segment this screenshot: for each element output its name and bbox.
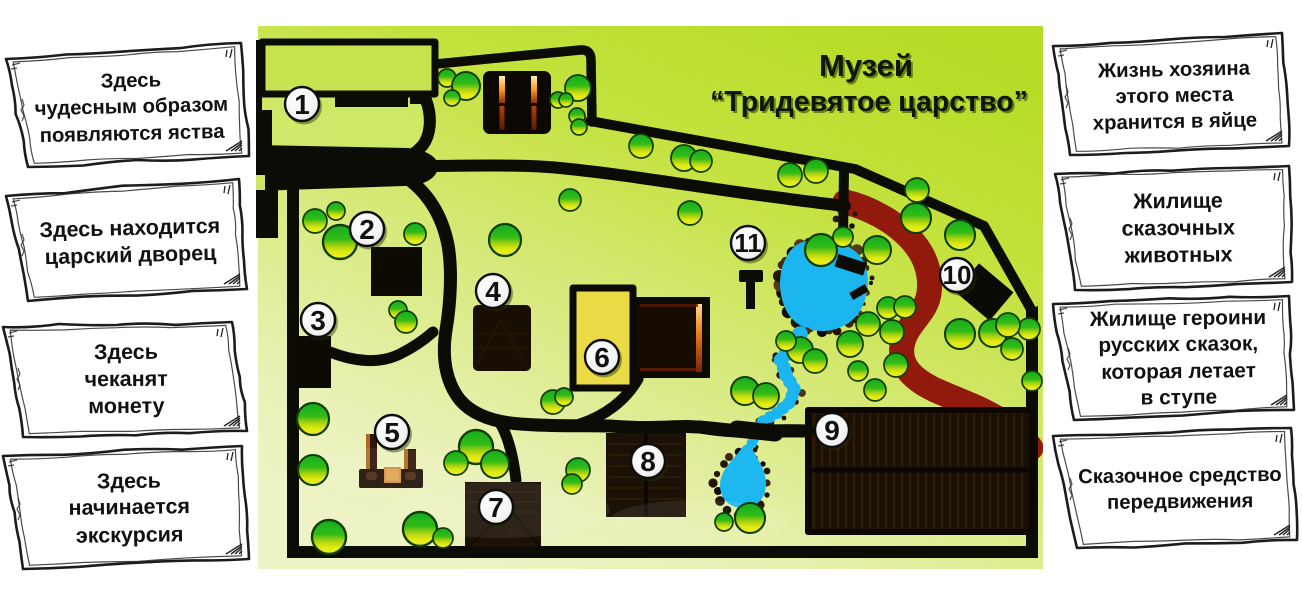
svg-text:царский дворец: царский дворец bbox=[44, 241, 217, 269]
svg-text:Сказочное средство: Сказочное средство bbox=[1078, 464, 1282, 488]
svg-text:сказочных: сказочных bbox=[1121, 215, 1235, 240]
svg-text:3: 3 bbox=[310, 305, 326, 336]
svg-text:7: 7 bbox=[488, 492, 504, 523]
svg-text:передвижения: передвижения bbox=[1107, 490, 1254, 514]
svg-text:монету: монету bbox=[88, 394, 165, 419]
svg-text:5: 5 bbox=[384, 417, 400, 448]
svg-text:6: 6 bbox=[594, 342, 610, 373]
svg-text:Здесь: Здесь bbox=[94, 340, 158, 364]
svg-text:Здесь находится: Здесь находится bbox=[39, 214, 220, 243]
svg-text:начинается: начинается bbox=[68, 494, 190, 520]
svg-text:Здесь: Здесь bbox=[100, 69, 161, 92]
svg-text:Здесь: Здесь bbox=[97, 469, 161, 494]
svg-text:хранится в яйце: хранится в яйце bbox=[1093, 109, 1258, 134]
svg-text:Музей: Музей bbox=[819, 48, 913, 83]
svg-text:2: 2 bbox=[359, 214, 375, 245]
svg-text:чеканят: чеканят bbox=[84, 367, 167, 392]
svg-text:11: 11 bbox=[734, 228, 762, 258]
svg-text:1: 1 bbox=[294, 89, 310, 120]
svg-text:4: 4 bbox=[485, 276, 501, 307]
svg-text:в ступе: в ступе bbox=[1140, 386, 1217, 410]
svg-text:Жизнь хозяина: Жизнь хозяина bbox=[1097, 57, 1251, 82]
svg-text:этого места: этого места bbox=[1115, 84, 1234, 108]
svg-text:чудесным образом: чудесным образом bbox=[35, 94, 229, 121]
svg-text:8: 8 bbox=[640, 446, 656, 477]
svg-text:русских сказок,: русских сказок, bbox=[1098, 332, 1258, 357]
svg-text:Жилище: Жилище bbox=[1132, 188, 1223, 213]
svg-text:которая летает: которая летает bbox=[1101, 359, 1256, 384]
svg-text:9: 9 bbox=[824, 415, 840, 446]
svg-text:экскурсия: экскурсия bbox=[76, 522, 184, 548]
svg-text:“Тридевятое царство”: “Тридевятое царство” bbox=[710, 86, 1028, 118]
svg-text:10: 10 bbox=[943, 260, 972, 290]
svg-text:Жилище героини: Жилище героини bbox=[1089, 306, 1267, 331]
svg-text:животных: животных bbox=[1124, 242, 1233, 267]
svg-text:появляются яства: появляются яства bbox=[39, 121, 225, 147]
